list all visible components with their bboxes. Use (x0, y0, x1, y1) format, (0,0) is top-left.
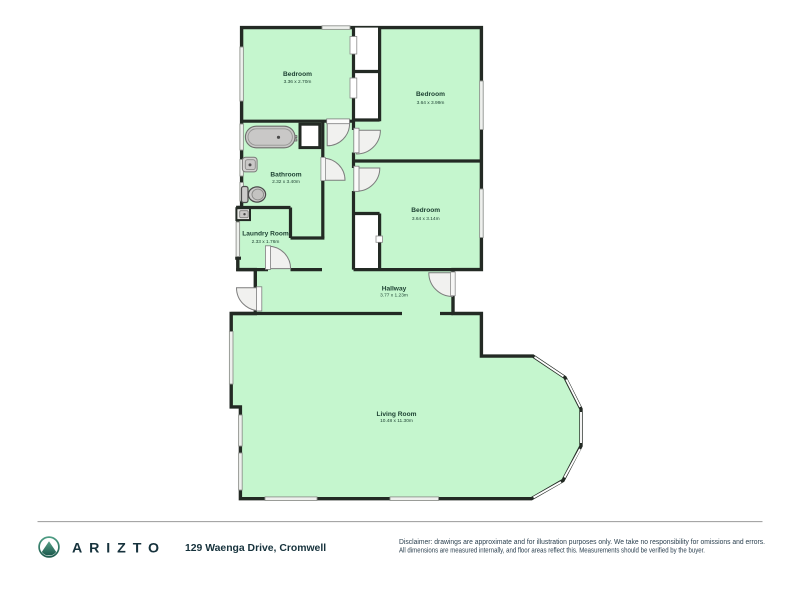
svg-text:3.64 x 3.14m: 3.64 x 3.14m (412, 216, 440, 222)
svg-text:Bedroom: Bedroom (411, 207, 440, 214)
svg-text:2.33 x 1.76m: 2.33 x 1.76m (252, 239, 280, 245)
svg-text:129 Waenga Drive, Cromwell: 129 Waenga Drive, Cromwell (185, 543, 326, 554)
svg-text:3.36 x 2.70m: 3.36 x 2.70m (284, 79, 312, 85)
svg-text:Laundry Room: Laundry Room (242, 231, 289, 238)
svg-text:Hallway: Hallway (382, 286, 407, 293)
svg-text:Bathroom: Bathroom (270, 172, 301, 179)
svg-text:Bedroom: Bedroom (416, 91, 445, 98)
svg-text:Disclaimer: drawings are appro: Disclaimer: drawings are approximate and… (399, 539, 765, 546)
svg-text:All dimensions are measured in: All dimensions are measured internally, … (399, 547, 705, 554)
svg-text:Bedroom: Bedroom (283, 71, 312, 78)
svg-text:Living Room: Living Room (377, 411, 417, 418)
svg-text:3.77 x 1.23m: 3.77 x 1.23m (380, 292, 408, 298)
svg-text:3.64 x 3.99m: 3.64 x 3.99m (417, 100, 445, 106)
svg-text:2.32 x 3.40m: 2.32 x 3.40m (272, 179, 300, 185)
svg-text:ARIZTO: ARIZTO (72, 541, 166, 557)
svg-text:10.48 x 11.30m: 10.48 x 11.30m (380, 418, 413, 424)
